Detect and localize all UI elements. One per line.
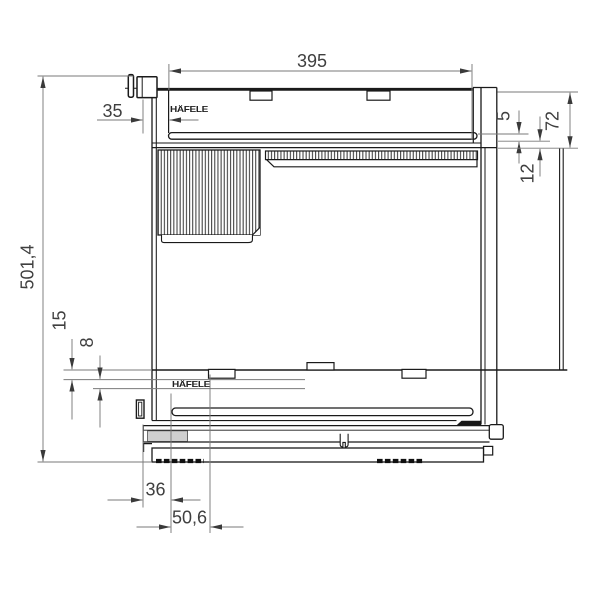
technical-drawing: HÄFELE HÄFELE 501,4 395 35 5 bbox=[0, 0, 600, 600]
dimension-label: 36 bbox=[145, 480, 165, 500]
dimension-label: 72 bbox=[543, 111, 563, 131]
rail-end-cap bbox=[489, 425, 503, 440]
gallery-rail-bottom bbox=[172, 408, 473, 416]
rail-right-step bbox=[484, 446, 493, 455]
ribbed-block bbox=[158, 150, 260, 243]
dimension-label: 8 bbox=[77, 337, 97, 347]
dimension-label: 35 bbox=[102, 101, 122, 121]
clamp-screw bbox=[128, 75, 133, 98]
top-clip-left bbox=[250, 91, 272, 100]
brand-logo-bottom: HÄFELE bbox=[172, 379, 211, 389]
front-clamp bbox=[128, 75, 157, 98]
dimension-label: 15 bbox=[50, 310, 70, 330]
rail-clip-up bbox=[307, 363, 334, 370]
dimension-label: 395 bbox=[297, 51, 327, 71]
dimension-label: 12 bbox=[518, 163, 538, 183]
strip-bar bbox=[267, 160, 478, 167]
rail-clip-down-right bbox=[402, 369, 426, 378]
clamp-body bbox=[137, 77, 157, 98]
dimension-label: 501,4 bbox=[18, 244, 38, 289]
left-latch bbox=[136, 400, 144, 418]
ribbed-strip bbox=[266, 151, 478, 167]
block-lip bbox=[162, 235, 253, 243]
top-clip-right bbox=[367, 91, 390, 100]
brand-logo-top: HÄFELE bbox=[170, 104, 209, 114]
rail-shaded-section bbox=[148, 431, 188, 442]
gallery-rail-top bbox=[169, 133, 478, 140]
dimension-label: 50,6 bbox=[172, 508, 207, 528]
dimension-label: 5 bbox=[494, 111, 514, 121]
rail-clip-down-left bbox=[209, 369, 236, 378]
